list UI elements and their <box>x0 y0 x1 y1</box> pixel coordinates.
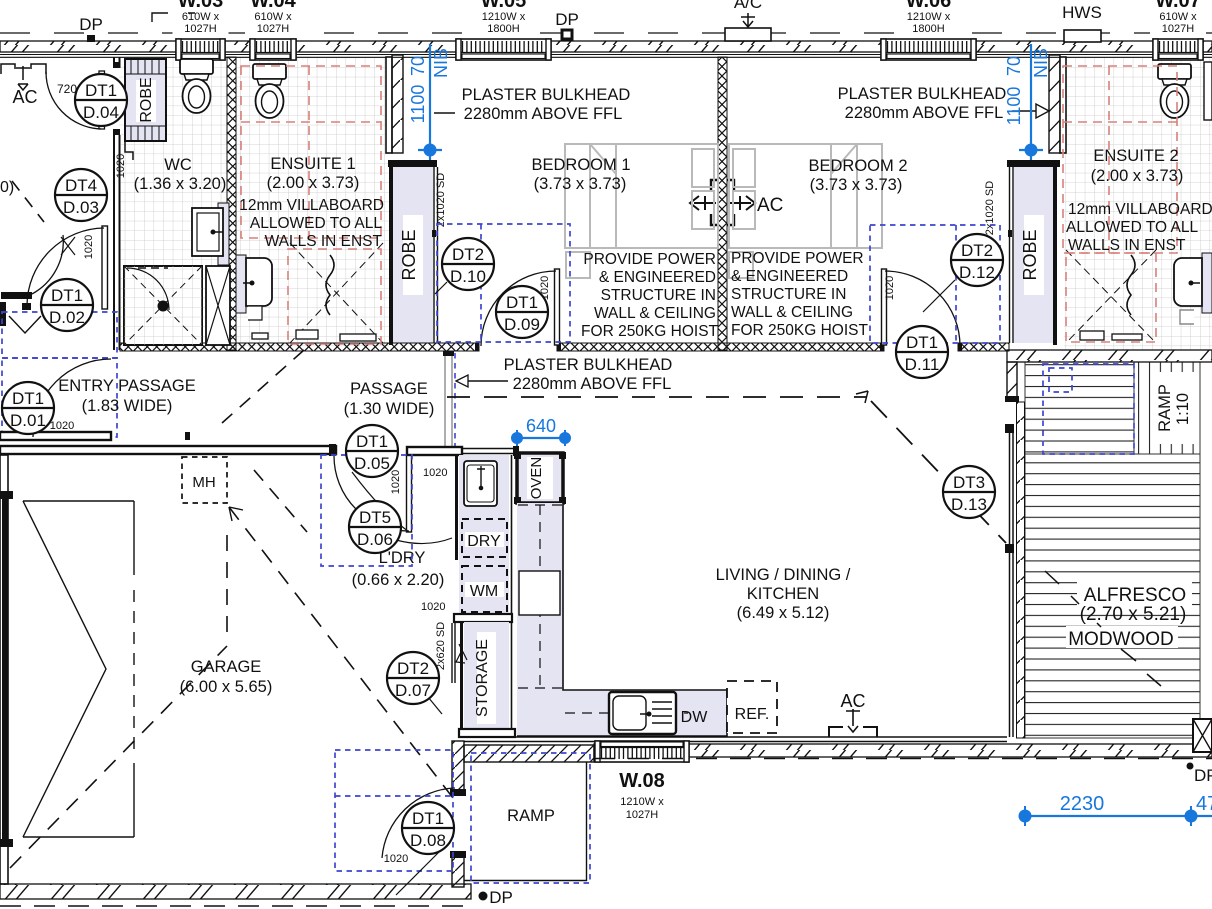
svg-text:(1.36 x 3.20): (1.36 x 3.20) <box>134 175 227 193</box>
svg-text:D.11: D.11 <box>905 355 940 374</box>
svg-text:1020: 1020 <box>384 853 408 865</box>
svg-text:W.08: W.08 <box>619 770 665 792</box>
svg-text:PROVIDE POWER: PROVIDE POWER <box>583 251 716 268</box>
svg-text:D.10: D.10 <box>450 267 486 286</box>
svg-text:D.12: D.12 <box>959 263 995 282</box>
svg-text:1020: 1020 <box>50 420 74 432</box>
svg-text:(3.73 x 3.73): (3.73 x 3.73) <box>534 175 627 193</box>
svg-text:1027H: 1027H <box>626 809 658 821</box>
svg-text:D.02: D.02 <box>49 308 85 327</box>
svg-text:1020: 1020 <box>115 154 127 178</box>
svg-text:DT1: DT1 <box>356 432 388 451</box>
svg-text:ROBE: ROBE <box>138 77 155 122</box>
svg-text:ROBE: ROBE <box>1020 229 1040 280</box>
svg-text:D.09: D.09 <box>504 315 540 334</box>
svg-text:(1.83 WIDE): (1.83 WIDE) <box>82 397 173 415</box>
svg-text:WM: WM <box>470 583 498 600</box>
svg-text:610W x: 610W x <box>254 11 292 23</box>
svg-text:BEDROOM 2: BEDROOM 2 <box>808 157 907 175</box>
svg-text:1020: 1020 <box>884 276 896 300</box>
svg-text:1020: 1020 <box>83 235 95 259</box>
svg-text:2230: 2230 <box>1060 793 1105 815</box>
svg-text:WALL & CEILING: WALL & CEILING <box>594 305 716 322</box>
svg-text:1800H: 1800H <box>487 23 519 35</box>
svg-text:NIB: NIB <box>1031 48 1051 78</box>
svg-text:STRUCTURE IN: STRUCTURE IN <box>731 286 846 303</box>
svg-text:DT1: DT1 <box>506 293 538 312</box>
svg-text:PLASTER BULKHEAD: PLASTER BULKHEAD <box>462 86 631 104</box>
svg-text:1210W x: 1210W x <box>907 11 951 23</box>
svg-text:(2.00 x 3.73): (2.00 x 3.73) <box>267 174 360 192</box>
svg-text:12mm VILLABOARD: 12mm VILLABOARD <box>1068 201 1212 218</box>
svg-text:GARAGE: GARAGE <box>191 658 262 676</box>
svg-text:(3.73 x 3.73): (3.73 x 3.73) <box>810 176 903 194</box>
svg-text:& ENGINEERED: & ENGINEERED <box>731 268 848 285</box>
svg-text:ALFRESCO: ALFRESCO <box>1084 585 1186 606</box>
svg-text:KITCHEN: KITCHEN <box>747 585 819 603</box>
svg-text:1210W x: 1210W x <box>620 796 664 808</box>
svg-text:1020: 1020 <box>421 601 445 613</box>
svg-text:AC: AC <box>12 87 37 107</box>
svg-text:2280mm ABOVE FFL: 2280mm ABOVE FFL <box>513 375 672 393</box>
svg-text:DT1: DT1 <box>51 286 83 305</box>
svg-text:(2.00 x 3.73): (2.00 x 3.73) <box>1091 167 1184 185</box>
svg-text:DT4: DT4 <box>65 176 97 195</box>
svg-text:WC: WC <box>164 156 192 174</box>
svg-text:ROBE: ROBE <box>399 229 419 280</box>
svg-text:(0.66 x 2.20): (0.66 x 2.20) <box>352 571 445 589</box>
svg-text:(2.70 x 5.21): (2.70 x 5.21) <box>1080 604 1187 625</box>
svg-text:D.07: D.07 <box>395 681 431 700</box>
svg-text:MH: MH <box>192 474 215 491</box>
svg-text:RAMP: RAMP <box>1156 384 1174 432</box>
svg-text:DT3: DT3 <box>953 473 985 492</box>
svg-text:OVEN: OVEN <box>528 457 545 500</box>
svg-text:1027H: 1027H <box>184 23 216 35</box>
svg-text:70: 70 <box>408 56 428 76</box>
svg-text:1027H: 1027H <box>1162 23 1194 35</box>
svg-text:ALLOWED TO ALL: ALLOWED TO ALL <box>250 215 382 232</box>
svg-text:70: 70 <box>1004 56 1024 76</box>
svg-text:PLASTER BULKHEAD: PLASTER BULKHEAD <box>504 356 673 374</box>
svg-text:D.08: D.08 <box>410 831 446 850</box>
svg-text:1100: 1100 <box>1004 87 1024 126</box>
svg-text:FOR 250KG HOIST: FOR 250KG HOIST <box>731 322 868 339</box>
svg-text:1100: 1100 <box>408 85 428 124</box>
svg-text:STORAGE: STORAGE <box>474 639 491 717</box>
svg-text:AC: AC <box>840 691 865 711</box>
svg-text:DT1: DT1 <box>906 333 938 352</box>
svg-text:1020: 1020 <box>390 470 402 494</box>
svg-text:DT1: DT1 <box>85 81 117 100</box>
svg-text:WALLS IN ENST: WALLS IN ENST <box>265 233 383 250</box>
svg-text:DT1: DT1 <box>412 809 444 828</box>
svg-text:DP: DP <box>555 10 579 29</box>
svg-text:WALL & CEILING: WALL & CEILING <box>731 304 853 321</box>
svg-text:LIVING / DINING /: LIVING / DINING / <box>716 566 851 584</box>
svg-text:PROVIDE POWER: PROVIDE POWER <box>731 250 864 267</box>
svg-text:D.03: D.03 <box>63 198 99 217</box>
svg-text:DT5: DT5 <box>359 508 391 527</box>
svg-text:610W x: 610W x <box>1159 11 1197 23</box>
svg-text:1027H: 1027H <box>257 23 289 35</box>
svg-text:470: 470 <box>1196 793 1212 815</box>
svg-text:D.04: D.04 <box>83 103 119 122</box>
svg-text:A/C: A/C <box>734 0 762 12</box>
svg-text:WALLS IN ENST: WALLS IN ENST <box>1068 237 1186 254</box>
svg-text:1210W x: 1210W x <box>482 11 526 23</box>
svg-text:BEDROOM 1: BEDROOM 1 <box>531 156 630 174</box>
svg-text:REF.: REF. <box>735 706 770 723</box>
svg-text:& ENGINEERED: & ENGINEERED <box>599 269 716 286</box>
svg-text:AC: AC <box>757 195 783 216</box>
svg-text:NIB: NIB <box>431 48 451 78</box>
svg-text:D.05: D.05 <box>354 454 390 473</box>
svg-text:(6.00 x 5.65): (6.00 x 5.65) <box>180 678 273 696</box>
svg-text:2x1020 SD: 2x1020 SD <box>984 181 996 235</box>
svg-text:2280mm ABOVE FFL: 2280mm ABOVE FFL <box>464 105 623 123</box>
svg-text:STRUCTURE IN: STRUCTURE IN <box>601 287 716 304</box>
svg-text:12mm VILLABOARD: 12mm VILLABOARD <box>239 197 384 214</box>
svg-text:(6.49 x 5.12): (6.49 x 5.12) <box>737 604 830 622</box>
svg-text:(1.30 WIDE): (1.30 WIDE) <box>344 400 435 418</box>
svg-text:DP: DP <box>1194 766 1212 785</box>
svg-text:DW: DW <box>681 709 709 726</box>
svg-text:DT1: DT1 <box>12 389 44 408</box>
svg-text:PLASTER BULKHEAD: PLASTER BULKHEAD <box>838 85 1007 103</box>
svg-text:D.01: D.01 <box>10 411 46 430</box>
svg-text:DT2: DT2 <box>397 659 429 678</box>
svg-text:ALLOWED TO ALL: ALLOWED TO ALL <box>1066 219 1198 236</box>
svg-text:MODWOOD: MODWOOD <box>1068 629 1174 650</box>
svg-text:HWS: HWS <box>1062 3 1102 22</box>
svg-text:1:10: 1:10 <box>1174 393 1192 425</box>
svg-text:RAMP: RAMP <box>507 807 555 825</box>
svg-text:FOR 250KG HOIST: FOR 250KG HOIST <box>581 323 718 340</box>
svg-text:1020: 1020 <box>423 467 447 479</box>
svg-text:D.06: D.06 <box>357 530 393 549</box>
svg-text:DP: DP <box>79 15 103 34</box>
svg-text:2x1020 SD: 2x1020 SD <box>435 173 447 227</box>
svg-text:DP: DP <box>489 888 513 907</box>
svg-text:2280mm ABOVE FFL: 2280mm ABOVE FFL <box>845 104 1004 122</box>
svg-text:D.13: D.13 <box>951 495 987 514</box>
svg-text:1800H: 1800H <box>912 23 944 35</box>
svg-text:ENSUITE 2: ENSUITE 2 <box>1093 147 1178 165</box>
svg-text:720: 720 <box>57 82 77 96</box>
svg-text:610W x: 610W x <box>182 11 220 23</box>
svg-text:ENTRY PASSAGE: ENTRY PASSAGE <box>58 377 196 395</box>
svg-text:DT2: DT2 <box>961 241 993 260</box>
svg-text:DT2: DT2 <box>452 245 484 264</box>
svg-text:DRY: DRY <box>467 533 501 550</box>
svg-text:2x620 SD: 2x620 SD <box>435 622 447 670</box>
svg-text:PASSAGE: PASSAGE <box>350 380 428 398</box>
svg-text:ENSUITE 1: ENSUITE 1 <box>270 155 355 173</box>
svg-text:640: 640 <box>526 416 556 436</box>
